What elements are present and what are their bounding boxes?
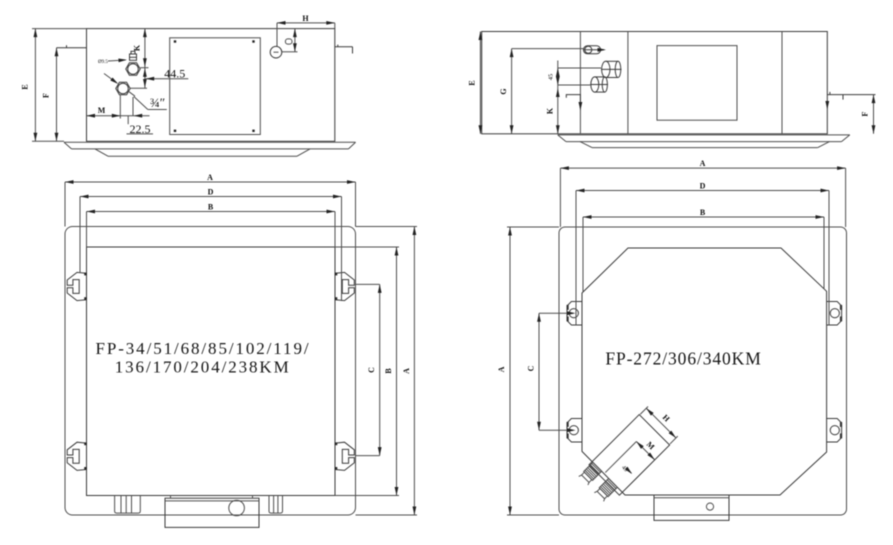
svg-text:H: H [661,413,672,424]
svg-text:A: A [207,173,213,182]
svg-text:136/170/204/238KM: 136/170/204/238KM [115,357,291,376]
svg-text:H: H [302,14,309,23]
svg-text:¾″: ¾″ [150,95,165,110]
svg-text:B: B [700,208,706,217]
svg-text:FP-272/306/340KM: FP-272/306/340KM [605,349,761,369]
svg-text:C: C [527,365,536,371]
svg-text:45: 45 [547,74,554,81]
svg-text:B: B [384,368,393,374]
svg-text:K: K [133,44,142,51]
svg-text:FP-34/51/68/85/102/119/: FP-34/51/68/85/102/119/ [96,339,311,358]
svg-text:A: A [402,368,411,374]
svg-text:44.5: 44.5 [164,67,185,81]
svg-text:G: G [499,88,508,94]
svg-text:E: E [468,80,477,85]
svg-text:F: F [861,111,870,116]
svg-text:A: A [700,159,706,168]
svg-text:D: D [208,187,214,196]
svg-text:E: E [21,84,30,89]
svg-text:Ø9.5: Ø9.5 [98,60,108,65]
svg-text:M: M [645,440,657,452]
svg-text:F: F [42,93,51,98]
svg-text:A: A [497,366,506,372]
svg-text:B: B [208,202,214,211]
svg-text:K: K [545,107,554,114]
svg-text:M: M [98,106,106,115]
svg-text:C: C [367,367,376,373]
svg-text:D: D [700,181,706,190]
